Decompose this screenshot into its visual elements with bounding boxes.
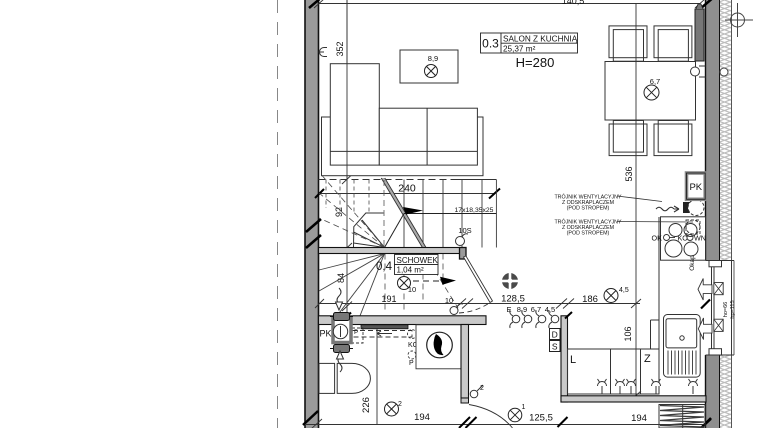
- svg-text:H=280: H=280: [516, 55, 555, 70]
- svg-text:194: 194: [631, 413, 647, 424]
- svg-text:125,5: 125,5: [529, 412, 553, 423]
- svg-text:128,5: 128,5: [501, 294, 525, 305]
- svg-text:352: 352: [335, 41, 345, 56]
- svg-text:WN: WN: [694, 234, 706, 243]
- svg-text:1: 1: [522, 404, 526, 411]
- svg-text:0,4: 0,4: [376, 261, 393, 273]
- svg-text:226: 226: [361, 397, 372, 413]
- svg-text:P: P: [409, 360, 414, 367]
- svg-text:106: 106: [623, 326, 633, 341]
- svg-text:186: 186: [582, 294, 598, 305]
- svg-text:4,5: 4,5: [619, 287, 629, 294]
- svg-text:240: 240: [398, 183, 416, 195]
- svg-text:2: 2: [480, 385, 484, 392]
- svg-text:17x18,35x25: 17x18,35x25: [455, 207, 494, 214]
- svg-text:Okap: Okap: [689, 255, 696, 271]
- svg-text:Z: Z: [644, 353, 651, 365]
- svg-text:SCHOWEK: SCHOWEK: [397, 256, 439, 265]
- svg-text:E: E: [506, 305, 511, 314]
- svg-text:1,04 m²: 1,04 m²: [397, 266, 424, 275]
- svg-text:ho=66: ho=66: [723, 302, 729, 317]
- svg-text:2: 2: [398, 401, 402, 408]
- svg-text:P: P: [354, 329, 358, 336]
- svg-text:6,7: 6,7: [650, 77, 660, 86]
- svg-text:PK: PK: [689, 182, 702, 193]
- svg-text:140,5: 140,5: [562, 0, 585, 6]
- svg-text:S: S: [552, 342, 558, 352]
- svg-text:4,5: 4,5: [545, 305, 555, 314]
- svg-text:SALON Z KUCHNIĄ: SALON Z KUCHNIĄ: [503, 35, 578, 44]
- svg-text:(POD STROPEM): (POD STROPEM): [567, 231, 610, 237]
- svg-text:8,9: 8,9: [428, 54, 438, 63]
- svg-text:191: 191: [381, 294, 396, 304]
- svg-text:hp=115: hp=115: [730, 300, 736, 318]
- svg-text:10: 10: [408, 285, 416, 294]
- svg-text:D: D: [552, 330, 558, 340]
- svg-text:92: 92: [334, 207, 344, 217]
- svg-text:194: 194: [414, 412, 430, 423]
- svg-text:L: L: [570, 354, 576, 366]
- svg-text:0.3: 0.3: [482, 37, 499, 51]
- svg-text:OK: OK: [652, 234, 663, 243]
- svg-text:25,37 m²: 25,37 m²: [503, 45, 536, 54]
- svg-text:536: 536: [624, 166, 634, 181]
- svg-text:10: 10: [445, 296, 453, 305]
- svg-text:(POD STROPEM): (POD STROPEM): [567, 206, 610, 212]
- svg-text:PK: PK: [320, 329, 332, 339]
